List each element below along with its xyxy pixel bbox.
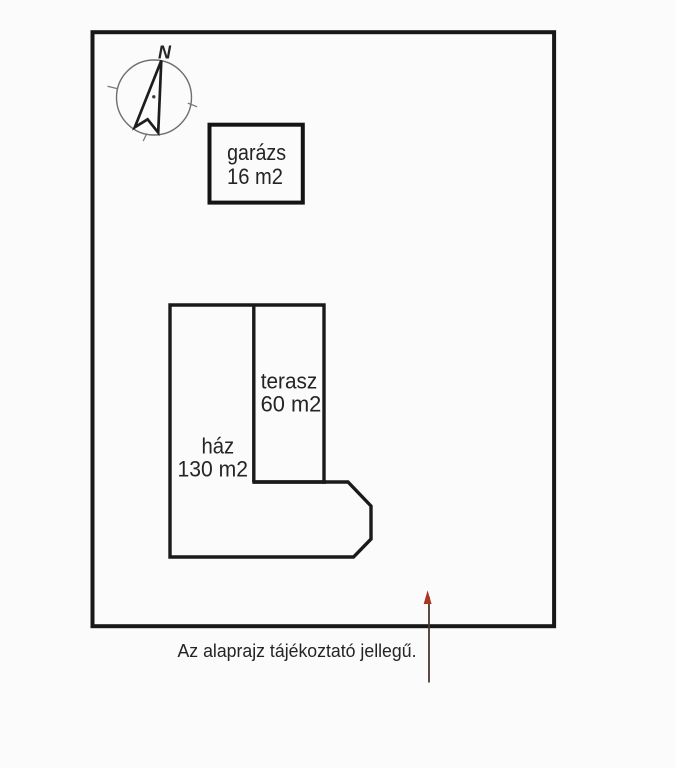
svg-text:Az alaprajz tájékoztató jelleg: Az alaprajz tájékoztató jellegű. <box>178 640 417 661</box>
svg-text:ház: ház <box>201 433 234 458</box>
svg-text:garázs: garázs <box>227 140 286 165</box>
svg-text:130 m2: 130 m2 <box>178 457 249 482</box>
svg-text:16 m2: 16 m2 <box>227 164 283 189</box>
svg-text:terasz: terasz <box>261 368 318 393</box>
svg-text:60 m2: 60 m2 <box>261 392 322 417</box>
svg-text:N: N <box>158 43 172 63</box>
